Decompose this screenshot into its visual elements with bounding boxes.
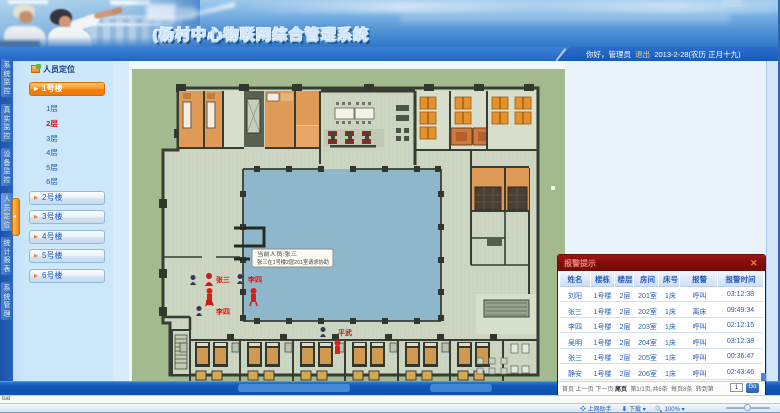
svg-text:李四: 李四 [247, 275, 262, 284]
svg-text:张三: 张三 [216, 275, 230, 284]
svg-text:张三在1号楼2层201室请求协助: 张三在1号楼2层201室请求协助 [257, 258, 329, 266]
svg-text:李四: 李四 [215, 307, 230, 316]
svg-text:当前人员:张三: 当前人员:张三 [257, 250, 298, 258]
svg-text:平武: 平武 [338, 328, 352, 337]
